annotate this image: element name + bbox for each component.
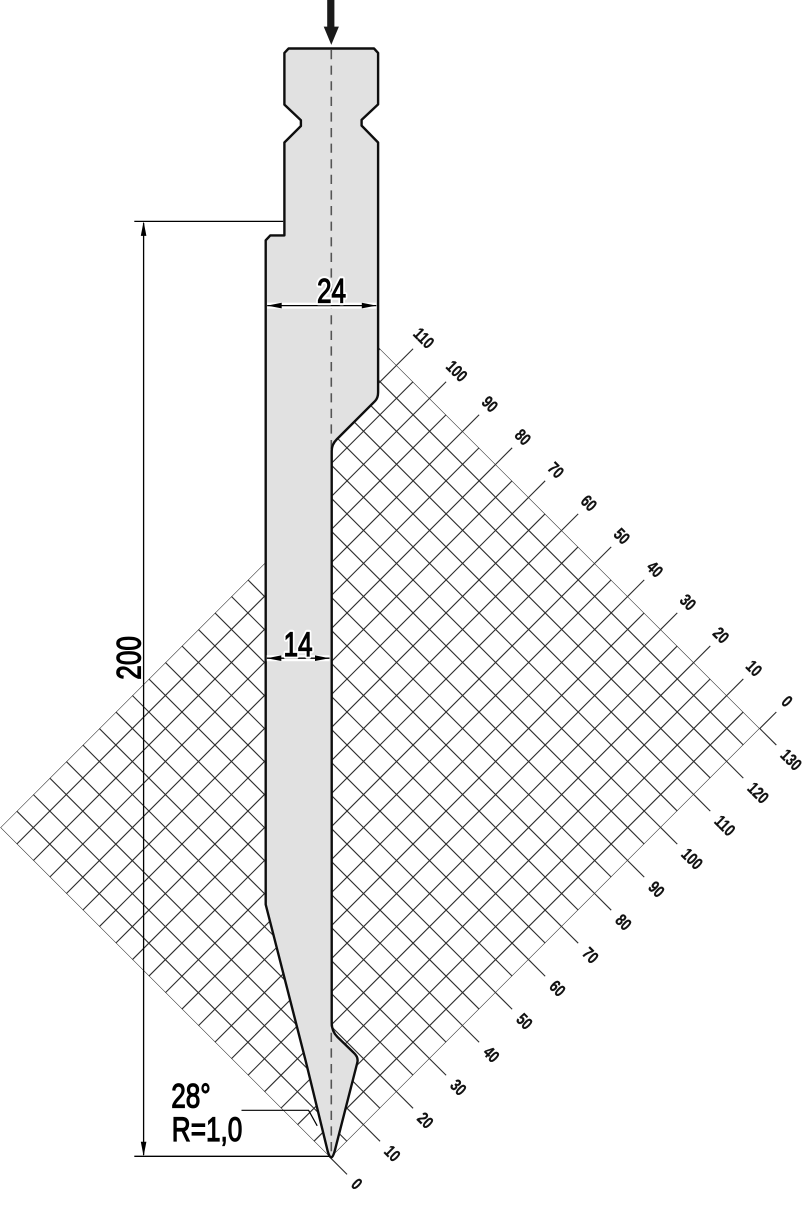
svg-text:24: 24 — [317, 273, 346, 310]
svg-text:R=1,0: R=1,0 — [172, 1112, 243, 1149]
svg-text:14: 14 — [283, 627, 312, 664]
svg-text:200: 200 — [112, 636, 149, 680]
svg-text:28°: 28° — [171, 1078, 211, 1115]
